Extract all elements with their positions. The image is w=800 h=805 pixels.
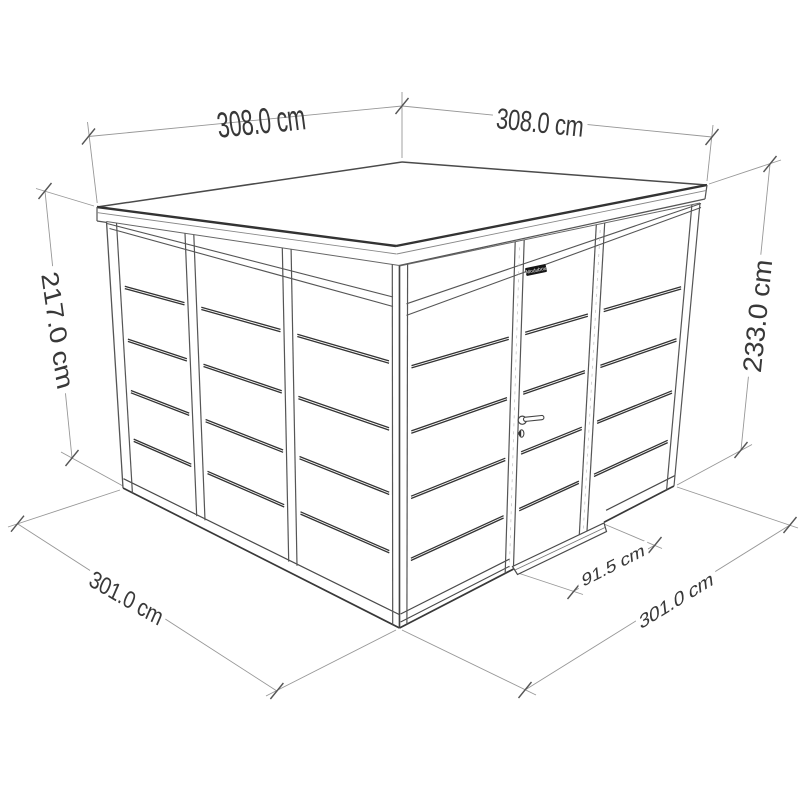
svg-text:301.0 cm: 301.0 cm [85,565,167,631]
svg-text:301.0 cm: 301.0 cm [638,567,714,634]
svg-text:233.0 cm: 233.0 cm [737,258,778,374]
svg-text:308.0 cm: 308.0 cm [215,98,308,146]
svg-text:308.0 cm: 308.0 cm [495,103,585,143]
svg-text:217.0 cm: 217.0 cm [36,268,79,392]
svg-text:91.5 cm: 91.5 cm [581,540,645,591]
